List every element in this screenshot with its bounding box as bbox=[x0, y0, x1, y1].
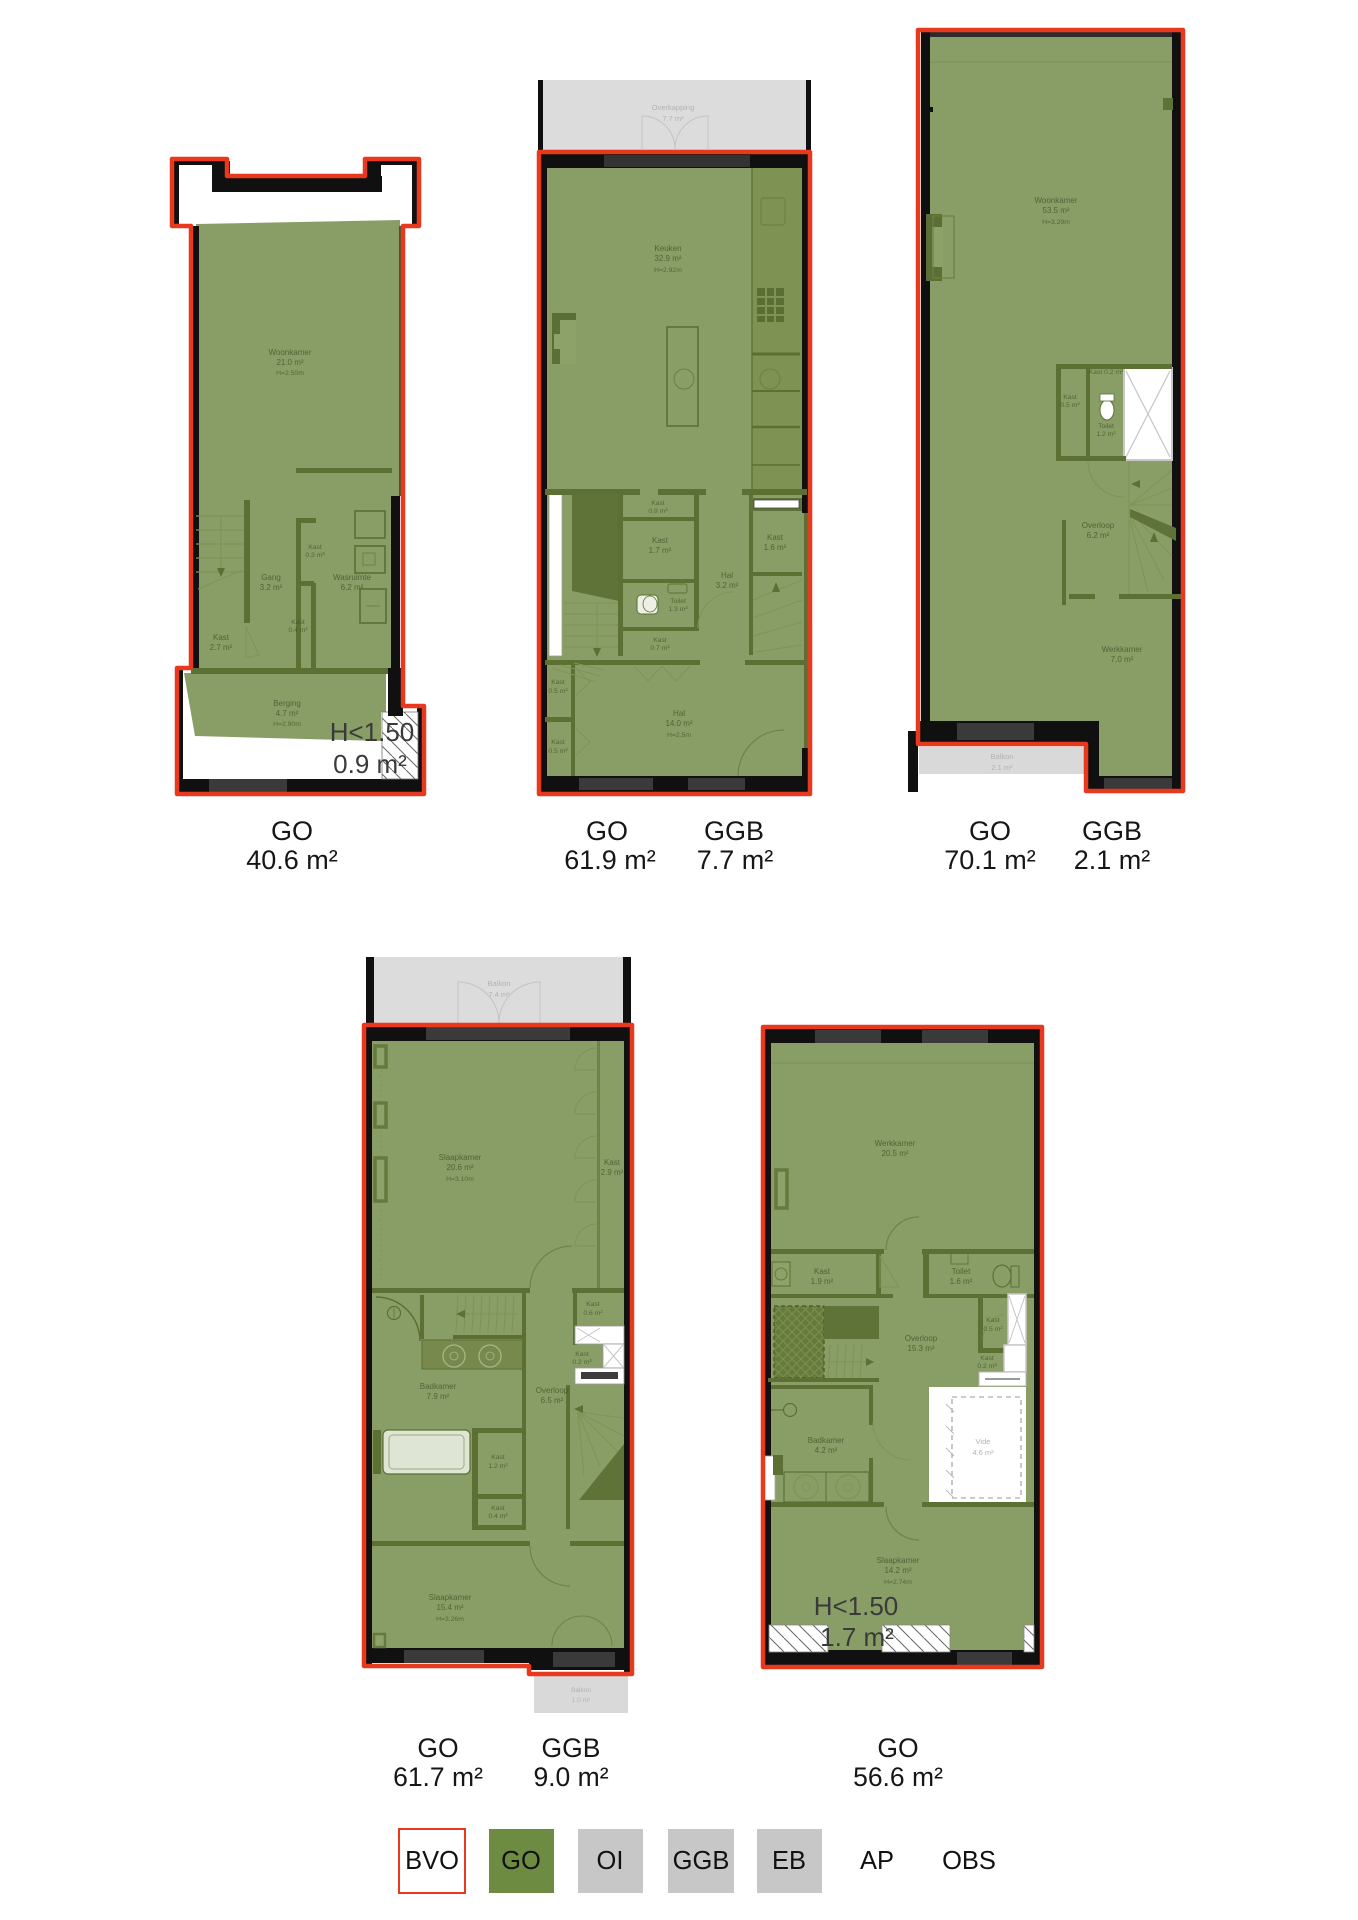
svg-text:H=3.26m: H=3.26m bbox=[436, 1616, 464, 1623]
svg-text:53.5 m²: 53.5 m² bbox=[1042, 206, 1069, 215]
svg-text:Kast: Kast bbox=[980, 1355, 994, 1362]
svg-text:GGB: GGB bbox=[542, 1733, 601, 1763]
svg-text:Kast: Kast bbox=[291, 619, 305, 626]
svg-text:56.6 m²: 56.6 m² bbox=[853, 1762, 943, 1792]
svg-text:9.0 m²: 9.0 m² bbox=[533, 1762, 608, 1792]
svg-text:GO: GO bbox=[969, 816, 1011, 846]
svg-text:2.1 m²: 2.1 m² bbox=[991, 763, 1013, 772]
svg-text:Kast: Kast bbox=[767, 533, 784, 542]
svg-text:3.2 m²: 3.2 m² bbox=[260, 583, 283, 592]
svg-text:Gang: Gang bbox=[261, 573, 281, 582]
svg-text:0.2 m²: 0.2 m² bbox=[977, 1363, 997, 1370]
svg-text:0.7 m²: 0.7 m² bbox=[650, 645, 670, 652]
svg-text:Slaapkamer: Slaapkamer bbox=[429, 1593, 472, 1602]
svg-text:1.7 m²: 1.7 m² bbox=[820, 1622, 894, 1652]
svg-text:Badkamer: Badkamer bbox=[420, 1382, 457, 1391]
svg-text:Balkon: Balkon bbox=[991, 752, 1014, 761]
svg-text:Woonkamer: Woonkamer bbox=[1035, 196, 1078, 205]
svg-text:0.5 m²: 0.5 m² bbox=[548, 688, 568, 695]
svg-text:7.7 m²: 7.7 m² bbox=[697, 845, 774, 875]
svg-text:0.4 m²: 0.4 m² bbox=[288, 627, 308, 634]
svg-text:Kast: Kast bbox=[814, 1267, 831, 1276]
svg-text:Hal: Hal bbox=[673, 709, 685, 718]
svg-text:Kast: Kast bbox=[652, 536, 669, 545]
svg-text:1.2 m²: 1.2 m² bbox=[1096, 431, 1116, 438]
svg-text:4.2 m²: 4.2 m² bbox=[815, 1446, 838, 1455]
svg-text:Balkon: Balkon bbox=[488, 979, 511, 988]
svg-text:3.2 m²: 3.2 m² bbox=[716, 581, 739, 590]
svg-text:Werkkamer: Werkkamer bbox=[1102, 645, 1143, 654]
svg-text:Werkkamer: Werkkamer bbox=[875, 1139, 916, 1148]
svg-text:Toilet: Toilet bbox=[952, 1267, 971, 1276]
svg-text:7.0 m²: 7.0 m² bbox=[1111, 655, 1134, 664]
svg-text:OI: OI bbox=[597, 1847, 624, 1875]
svg-text:1.6 m²: 1.6 m² bbox=[764, 543, 787, 552]
svg-text:Hal: Hal bbox=[721, 571, 733, 580]
svg-text:AP: AP bbox=[860, 1847, 894, 1875]
svg-text:H=3.10m: H=3.10m bbox=[446, 1176, 474, 1183]
svg-text:6.5 m²: 6.5 m² bbox=[541, 1396, 564, 1405]
svg-text:GGB: GGB bbox=[673, 1847, 730, 1875]
svg-text:GGB: GGB bbox=[1082, 816, 1142, 846]
svg-text:2.1 m²: 2.1 m² bbox=[1074, 845, 1151, 875]
svg-text:0.5 m²: 0.5 m² bbox=[548, 748, 568, 755]
svg-text:Kast: Kast bbox=[604, 1158, 621, 1167]
svg-text:Vide: Vide bbox=[976, 1437, 991, 1446]
svg-text:Wasruimte: Wasruimte bbox=[333, 573, 371, 582]
svg-text:Berging: Berging bbox=[273, 699, 301, 708]
svg-text:20.5 m²: 20.5 m² bbox=[881, 1149, 908, 1158]
svg-text:14.0 m²: 14.0 m² bbox=[665, 719, 692, 728]
svg-text:EB: EB bbox=[772, 1847, 806, 1875]
svg-text:H=3.29m: H=3.29m bbox=[1042, 219, 1070, 226]
svg-text:2.7 m²: 2.7 m² bbox=[210, 643, 233, 652]
svg-text:OBS: OBS bbox=[942, 1847, 996, 1875]
svg-text:Kast: Kast bbox=[551, 679, 565, 686]
svg-text:1.2 m²: 1.2 m² bbox=[488, 1463, 508, 1470]
svg-text:0.4 m²: 0.4 m² bbox=[488, 1513, 508, 1520]
svg-text:0.6 m²: 0.6 m² bbox=[583, 1310, 603, 1317]
svg-text:70.1 m²: 70.1 m² bbox=[944, 845, 1036, 875]
svg-text:61.7 m²: 61.7 m² bbox=[393, 1762, 483, 1792]
svg-text:H=2.90m: H=2.90m bbox=[273, 721, 301, 728]
svg-text:0.2 m²: 0.2 m² bbox=[572, 1359, 592, 1366]
svg-text:GO: GO bbox=[586, 816, 628, 846]
svg-text:0.9 m²: 0.9 m² bbox=[333, 749, 407, 779]
svg-text:H=2.5m: H=2.5m bbox=[667, 732, 691, 739]
svg-text:7.9 m²: 7.9 m² bbox=[427, 1392, 450, 1401]
svg-text:7.7 m²: 7.7 m² bbox=[662, 114, 684, 123]
svg-text:Kast: Kast bbox=[551, 739, 565, 746]
svg-text:1.7 m²: 1.7 m² bbox=[649, 546, 672, 555]
svg-text:Toilet: Toilet bbox=[670, 598, 686, 605]
svg-text:GO: GO bbox=[417, 1733, 458, 1763]
svg-text:Toilet: Toilet bbox=[1098, 423, 1114, 430]
svg-text:2.9 m²: 2.9 m² bbox=[601, 1168, 624, 1177]
svg-text:Kast: Kast bbox=[986, 1317, 1000, 1324]
svg-text:Kast: Kast bbox=[653, 637, 667, 644]
svg-text:Kast: Kast bbox=[586, 1301, 600, 1308]
svg-text:Slaapkamer: Slaapkamer bbox=[439, 1153, 482, 1162]
svg-text:20.6 m²: 20.6 m² bbox=[446, 1163, 473, 1172]
svg-text:6.2 m²: 6.2 m² bbox=[341, 583, 364, 592]
svg-text:H<1.50: H<1.50 bbox=[814, 1591, 899, 1621]
svg-text:Kast: Kast bbox=[491, 1505, 505, 1512]
svg-text:Overloop: Overloop bbox=[1082, 521, 1115, 530]
svg-text:4.7 m²: 4.7 m² bbox=[276, 709, 299, 718]
svg-text:1.0 m²: 1.0 m² bbox=[572, 1697, 591, 1704]
svg-text:0.5 m²: 0.5 m² bbox=[983, 1326, 1003, 1333]
svg-text:Overloop: Overloop bbox=[536, 1386, 569, 1395]
svg-text:32.9 m²: 32.9 m² bbox=[654, 254, 681, 263]
svg-text:Badkamer: Badkamer bbox=[808, 1436, 845, 1445]
svg-text:H=2.50m: H=2.50m bbox=[276, 370, 304, 377]
svg-text:Woonkamer: Woonkamer bbox=[269, 348, 312, 357]
svg-text:7.4 m²: 7.4 m² bbox=[488, 990, 510, 999]
svg-text:GGB: GGB bbox=[704, 816, 764, 846]
svg-text:H<1.50: H<1.50 bbox=[330, 717, 415, 747]
svg-text:Balkon: Balkon bbox=[571, 1687, 591, 1694]
svg-text:4.6 m²: 4.6 m² bbox=[972, 1448, 994, 1457]
svg-text:GO: GO bbox=[271, 816, 313, 846]
svg-text:Overloop: Overloop bbox=[905, 1334, 938, 1343]
svg-text:15.4 m²: 15.4 m² bbox=[436, 1603, 463, 1612]
svg-text:GO: GO bbox=[501, 1847, 541, 1875]
svg-text:40.6 m²: 40.6 m² bbox=[246, 845, 338, 875]
svg-text:Overkapping: Overkapping bbox=[652, 103, 695, 112]
svg-text:0.5 m²: 0.5 m² bbox=[1060, 402, 1080, 409]
svg-text:14.2 m²: 14.2 m² bbox=[884, 1566, 911, 1575]
svg-text:Kast: Kast bbox=[213, 633, 230, 642]
svg-text:GO: GO bbox=[877, 1733, 918, 1763]
svg-text:Kast: Kast bbox=[1063, 394, 1077, 401]
svg-text:21.0 m²: 21.0 m² bbox=[276, 358, 303, 367]
svg-text:0.9 m²: 0.9 m² bbox=[648, 508, 668, 515]
svg-text:1.6 m²: 1.6 m² bbox=[950, 1277, 973, 1286]
svg-text:Keuken: Keuken bbox=[654, 244, 681, 253]
svg-text:6.2 m²: 6.2 m² bbox=[1087, 531, 1110, 540]
svg-text:1.3 m²: 1.3 m² bbox=[668, 606, 688, 613]
svg-text:H=2.74m: H=2.74m bbox=[884, 1579, 912, 1586]
svg-text:Kast: Kast bbox=[491, 1454, 505, 1461]
svg-text:0.3 m²: 0.3 m² bbox=[305, 552, 325, 559]
svg-text:BVO: BVO bbox=[405, 1847, 459, 1875]
svg-text:61.9 m²: 61.9 m² bbox=[564, 845, 656, 875]
svg-text:Kast: Kast bbox=[651, 500, 665, 507]
svg-text:H=2.92m: H=2.92m bbox=[654, 267, 682, 274]
svg-text:1.9 m²: 1.9 m² bbox=[811, 1277, 834, 1286]
svg-text:Kast: Kast bbox=[575, 1351, 589, 1358]
svg-text:Kast 0.2 m²: Kast 0.2 m² bbox=[1089, 369, 1124, 376]
svg-text:15.3 m²: 15.3 m² bbox=[907, 1344, 934, 1353]
svg-text:Slaapkamer: Slaapkamer bbox=[877, 1556, 920, 1565]
svg-text:Kast: Kast bbox=[308, 544, 322, 551]
